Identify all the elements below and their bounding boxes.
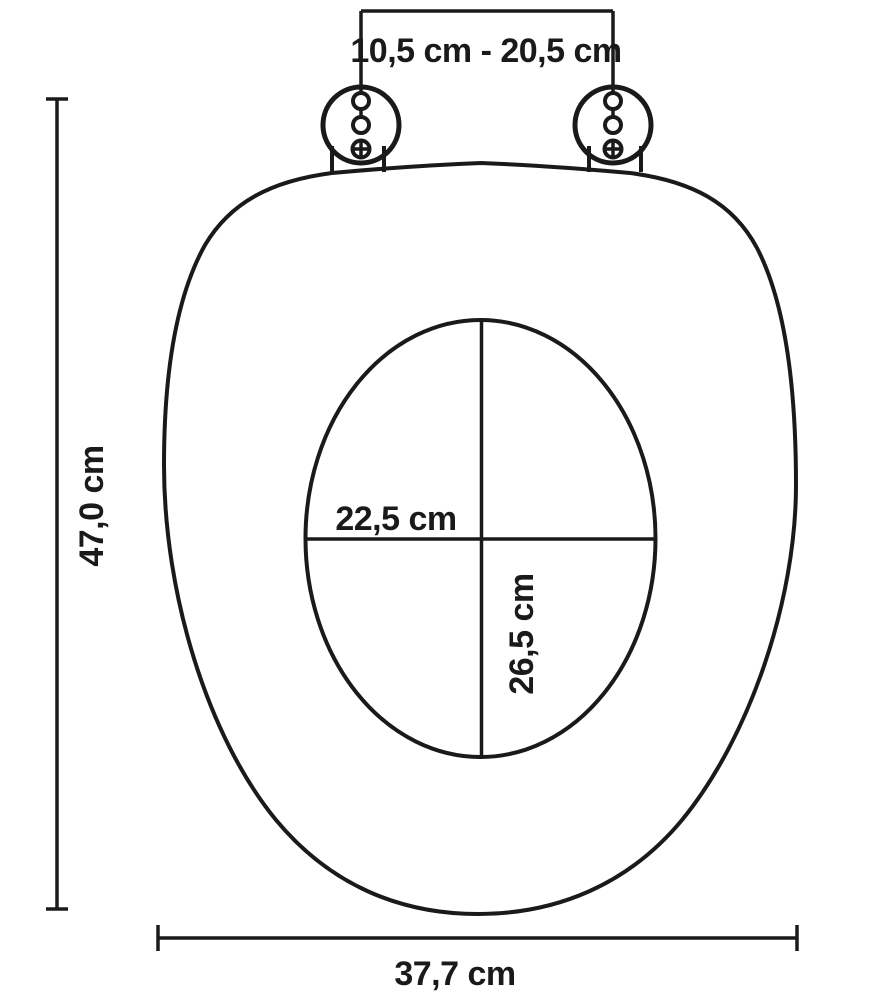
hinge-right-ring-middle-icon <box>605 117 621 133</box>
hinge-left <box>323 87 399 172</box>
toilet-seat-dimension-drawing: 10,5 cm - 20,5 cm 47,0 cm 22,5 cm 26,5 c… <box>0 0 885 1000</box>
overall-width-dimension-line <box>158 925 797 951</box>
hinge-left-ring-middle-icon <box>353 117 369 133</box>
opening-width-label: 22,5 cm <box>335 500 456 538</box>
overall-length-dimension-line <box>46 99 68 909</box>
hinge-right <box>575 87 651 172</box>
dimension-overall-width: 37,7 cm <box>158 925 797 993</box>
hinge-left-ring-top-icon <box>353 93 369 109</box>
overall-length-label: 47,0 cm <box>73 445 111 566</box>
diagram-canvas: 10,5 cm - 20,5 cm 47,0 cm 22,5 cm 26,5 c… <box>0 0 885 1000</box>
dimension-hinge-spacing: 10,5 cm - 20,5 cm <box>350 11 621 95</box>
dimension-overall-length: 47,0 cm <box>46 99 111 909</box>
hinge-right-ring-top-icon <box>605 93 621 109</box>
hinge-spacing-label: 10,5 cm - 20,5 cm <box>350 32 621 70</box>
opening-depth-label: 26,5 cm <box>503 573 541 694</box>
overall-width-label: 37,7 cm <box>394 955 515 993</box>
hinge-left-screw-icon <box>353 141 370 158</box>
hinge-right-screw-icon <box>605 141 622 158</box>
